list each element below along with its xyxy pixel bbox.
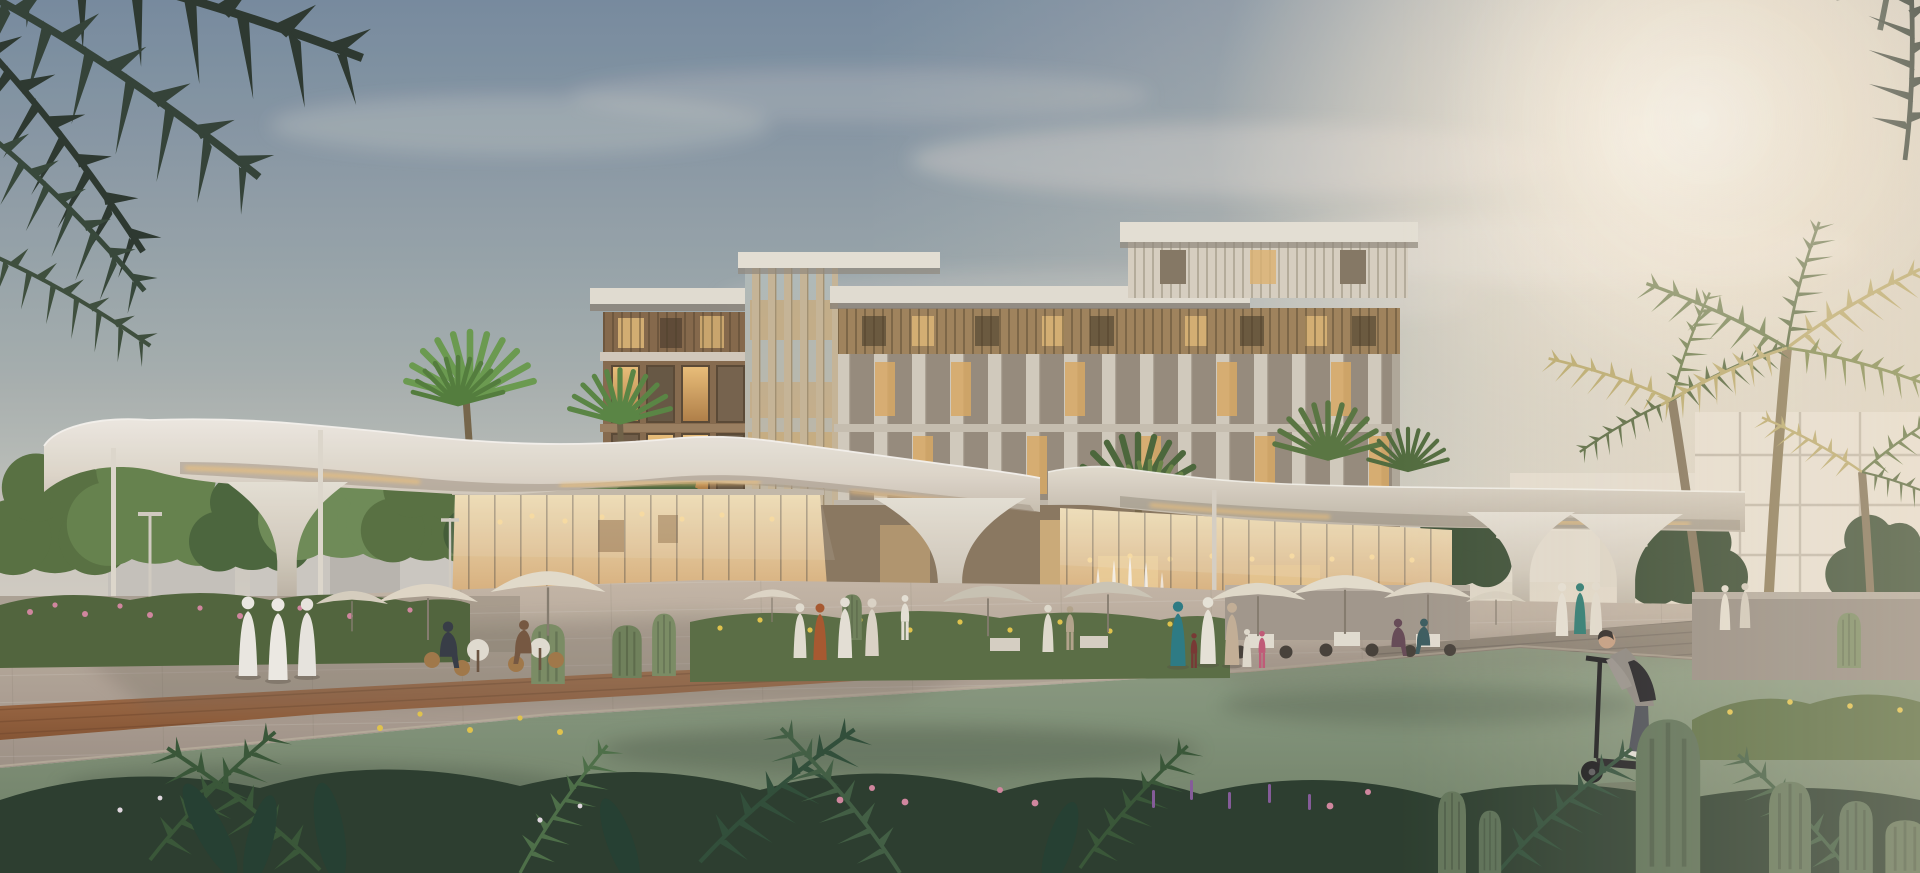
architectural-rendering <box>0 0 1920 873</box>
light-overlays <box>0 0 1920 873</box>
rendering-canvas <box>0 0 1920 873</box>
